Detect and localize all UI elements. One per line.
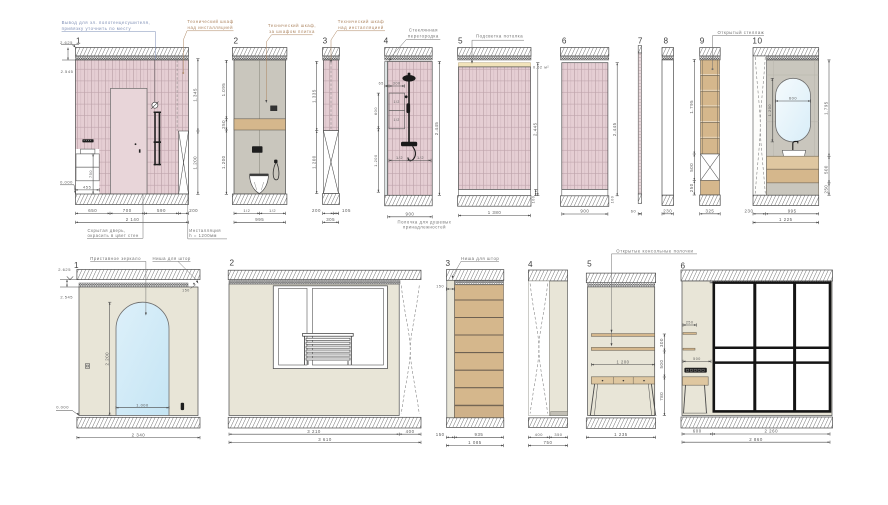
- svg-text:2 860: 2 860: [749, 437, 763, 442]
- svg-text:0.000: 0.000: [60, 179, 73, 184]
- svg-text:1.095: 1.095: [221, 83, 226, 97]
- svg-text:1.200: 1.200: [767, 104, 772, 117]
- svg-text:650: 650: [88, 208, 97, 213]
- svg-text:2.625: 2.625: [58, 267, 71, 272]
- svg-text:над инсталляцией: над инсталляцией: [188, 25, 234, 30]
- svg-text:300: 300: [659, 338, 664, 347]
- svg-text:1 235: 1 235: [614, 432, 628, 437]
- svg-text:окрасить в цвет стен: окрасить в цвет стен: [88, 233, 139, 238]
- svg-text:3: 3: [323, 37, 328, 46]
- svg-text:1/2: 1/2: [269, 208, 276, 213]
- svg-text:250: 250: [686, 321, 694, 325]
- svg-text:Открытые консольные полочки: Открытые консольные полочки: [616, 249, 693, 254]
- svg-text:3: 3: [445, 259, 450, 268]
- svg-text:455: 455: [83, 185, 92, 190]
- svg-text:h = 1200мм: h = 1200мм: [189, 233, 217, 238]
- svg-text:Скрытая дверь,: Скрытая дверь,: [88, 228, 126, 233]
- svg-text:500: 500: [693, 357, 701, 361]
- svg-text:2: 2: [233, 37, 238, 46]
- svg-text:Приставное зеркало: Приставное зеркало: [90, 256, 141, 261]
- svg-text:600: 600: [789, 96, 797, 101]
- svg-text:1/2: 1/2: [243, 208, 250, 213]
- svg-text:2 260: 2 260: [764, 429, 778, 434]
- svg-text:3 610: 3 610: [318, 437, 332, 442]
- svg-text:1/2: 1/2: [394, 100, 400, 104]
- svg-text:1.200: 1.200: [221, 155, 226, 169]
- svg-text:Открытый стеллаж: Открытый стеллаж: [718, 30, 765, 35]
- svg-text:1: 1: [76, 37, 81, 46]
- svg-text:325: 325: [705, 209, 714, 214]
- svg-text:2: 2: [229, 259, 234, 268]
- svg-text:250: 250: [221, 120, 226, 129]
- svg-text:2 340: 2 340: [132, 432, 146, 437]
- svg-text:1 200: 1 200: [617, 359, 630, 364]
- svg-text:Технический шкаф: Технический шкаф: [338, 19, 384, 24]
- svg-text:400: 400: [535, 432, 543, 437]
- svg-text:935: 935: [474, 432, 483, 437]
- svg-text:привязку уточнить по месту: привязку уточнить по месту: [62, 26, 132, 31]
- svg-text:2.445: 2.445: [434, 122, 439, 136]
- svg-text:750: 750: [544, 440, 553, 445]
- svg-text:1.795: 1.795: [689, 100, 694, 114]
- svg-text:Технический шкаф: Технический шкаф: [187, 19, 233, 24]
- svg-text:100: 100: [611, 196, 615, 204]
- svg-text:900: 900: [580, 209, 589, 214]
- svg-text:Ниша для штор: Ниша для штор: [153, 256, 191, 261]
- svg-text:перегородка: перегородка: [408, 34, 439, 39]
- svg-text:590: 590: [157, 208, 166, 213]
- svg-text:1.345: 1.345: [193, 88, 198, 102]
- svg-text:1/2: 1/2: [394, 118, 400, 122]
- svg-text:9: 9: [700, 37, 705, 46]
- svg-text:500: 500: [689, 163, 694, 172]
- svg-text:230: 230: [663, 209, 672, 214]
- svg-text:Полочка для душевых: Полочка для душевых: [398, 219, 452, 224]
- svg-text:за шкафом плитка: за шкафом плитка: [269, 29, 315, 34]
- svg-text:600: 600: [693, 429, 702, 434]
- svg-text:Подсветка потолка: Подсветка потолка: [476, 34, 523, 39]
- svg-text:250: 250: [824, 185, 829, 194]
- svg-text:1 380: 1 380: [488, 210, 502, 215]
- svg-text:500: 500: [824, 165, 829, 174]
- svg-text:1.000: 1.000: [136, 402, 149, 407]
- svg-text:1.335: 1.335: [311, 89, 316, 103]
- svg-text:2.545: 2.545: [61, 69, 74, 74]
- svg-text:1/2: 1/2: [417, 155, 424, 160]
- svg-text:300: 300: [393, 82, 401, 86]
- svg-text:200: 200: [312, 208, 321, 213]
- svg-text:3 210: 3 210: [307, 429, 321, 434]
- svg-text:1 225: 1 225: [779, 217, 793, 222]
- svg-text:2 140: 2 140: [126, 217, 140, 222]
- svg-text:над инсталляцией: над инсталляцией: [338, 25, 384, 30]
- svg-text:4: 4: [528, 260, 533, 269]
- svg-text:1.795: 1.795: [824, 101, 829, 115]
- svg-text:150: 150: [182, 288, 190, 292]
- svg-text:305: 305: [326, 217, 335, 222]
- svg-text:2.625: 2.625: [60, 40, 73, 45]
- svg-text:7: 7: [638, 37, 643, 46]
- svg-text:65: 65: [379, 82, 384, 86]
- svg-text:150: 150: [436, 432, 445, 437]
- svg-text:Ниша для штор: Ниша для штор: [461, 256, 499, 261]
- svg-text:принадлежностей: принадлежностей: [403, 225, 446, 230]
- svg-text:6: 6: [562, 37, 567, 46]
- svg-text:Технический шкаф,: Технический шкаф,: [268, 23, 316, 28]
- svg-text:400: 400: [406, 429, 415, 434]
- svg-text:500: 500: [659, 360, 664, 369]
- svg-text:0,62 м²: 0,62 м²: [533, 65, 549, 69]
- svg-text:1.200: 1.200: [311, 155, 316, 169]
- svg-text:1.200: 1.200: [193, 156, 198, 170]
- svg-text:200: 200: [189, 208, 198, 213]
- svg-text:2.200: 2.200: [104, 352, 109, 366]
- svg-text:250: 250: [689, 183, 694, 192]
- svg-text:600: 600: [373, 107, 378, 115]
- svg-text:995: 995: [788, 209, 797, 214]
- svg-text:900: 900: [405, 212, 414, 217]
- svg-text:1: 1: [74, 261, 79, 270]
- svg-text:Инсталляция: Инсталляция: [189, 228, 221, 233]
- svg-text:60: 60: [631, 209, 637, 214]
- svg-text:150: 150: [436, 285, 444, 289]
- svg-text:6: 6: [680, 262, 685, 271]
- svg-text:780: 780: [659, 392, 664, 401]
- svg-text:0.000: 0.000: [56, 405, 69, 410]
- svg-text:2.445: 2.445: [612, 122, 617, 136]
- svg-text:10: 10: [752, 37, 762, 46]
- svg-text:5: 5: [458, 37, 463, 46]
- svg-text:Стеклянная: Стеклянная: [409, 28, 438, 33]
- svg-text:2.445: 2.445: [533, 122, 538, 136]
- svg-text:1/2: 1/2: [396, 155, 403, 160]
- svg-text:5: 5: [587, 260, 592, 269]
- svg-text:750: 750: [88, 170, 93, 178]
- svg-text:2.545: 2.545: [60, 295, 73, 300]
- svg-text:995: 995: [255, 217, 264, 222]
- svg-text:Вывод для эл. полотенцесушител: Вывод для эл. полотенцесушителя,: [62, 20, 151, 25]
- svg-text:105: 105: [342, 208, 351, 213]
- svg-text:350: 350: [554, 432, 562, 437]
- svg-text:700: 700: [123, 208, 132, 213]
- svg-text:4: 4: [384, 37, 389, 46]
- svg-text:100: 100: [532, 196, 536, 204]
- svg-text:8: 8: [663, 37, 668, 46]
- svg-text:1 085: 1 085: [468, 440, 482, 445]
- svg-text:230: 230: [745, 209, 754, 214]
- svg-text:1.200: 1.200: [373, 154, 378, 167]
